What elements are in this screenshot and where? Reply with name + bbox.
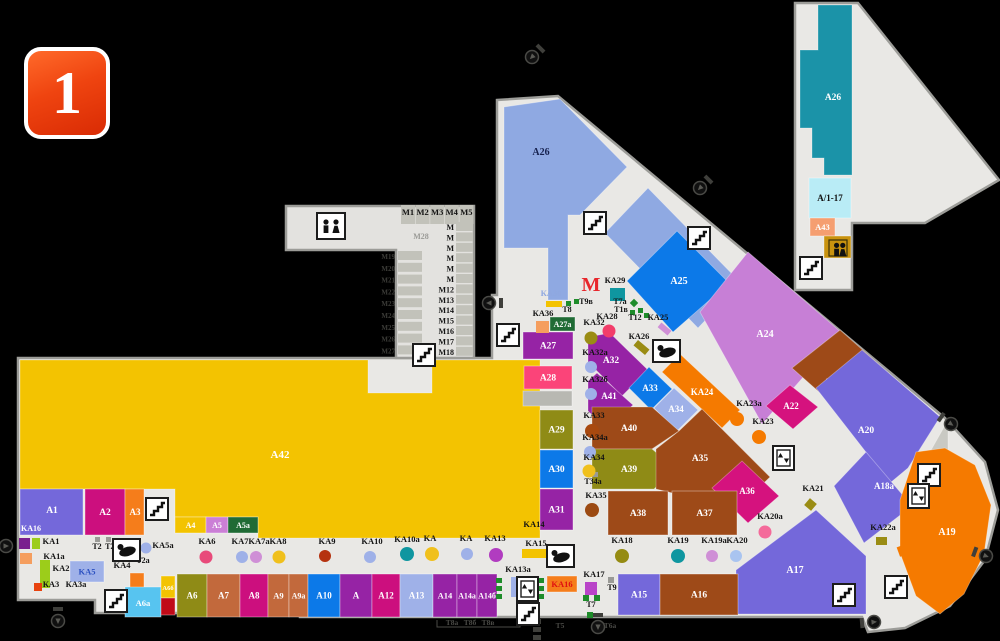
kiosk-label: KA bbox=[460, 533, 474, 543]
stairs-icon bbox=[800, 257, 822, 279]
m-unit[interactable] bbox=[398, 286, 422, 295]
store-label: A36 bbox=[739, 486, 755, 496]
floor-1-badge[interactable]: 1 bbox=[24, 47, 110, 139]
entrance-icon bbox=[52, 607, 65, 628]
map-label: М3 bbox=[431, 207, 443, 217]
map-label: М5 bbox=[460, 207, 472, 217]
store-label: A26 bbox=[825, 93, 842, 103]
store-label: A7 bbox=[218, 591, 229, 601]
store-label: A33 bbox=[642, 383, 658, 393]
store-label: KA5 bbox=[79, 567, 96, 577]
kiosk-mark-ka1a-mark[interactable] bbox=[20, 553, 32, 564]
floor-plan-canvas: М1М2М3М4М5МММММММ12М13М14М15М16М17М18М19… bbox=[0, 0, 1000, 641]
store-A[interactable]: A bbox=[340, 574, 372, 617]
m-unit[interactable] bbox=[398, 275, 422, 284]
map-label: М bbox=[446, 233, 454, 242]
store-A9a[interactable]: A9a bbox=[289, 574, 308, 617]
map-label: М24 bbox=[381, 312, 395, 320]
store-A31[interactable]: A31 bbox=[540, 489, 573, 530]
store-A27a[interactable]: A27a bbox=[550, 317, 575, 331]
kiosk-mark-ka16-left-mark[interactable] bbox=[19, 538, 30, 549]
kiosk-label: KA34 bbox=[583, 452, 605, 462]
kiosk-mark-green-dash[interactable] bbox=[496, 594, 502, 599]
kiosk-mark-ka15-mark[interactable] bbox=[522, 549, 549, 558]
map-label: Т34а bbox=[584, 477, 601, 486]
map-label: М bbox=[446, 254, 454, 263]
map-label: М20 bbox=[381, 265, 395, 273]
map-label: М26 bbox=[381, 336, 395, 344]
store-label: A31 bbox=[548, 506, 565, 516]
store-A6a[interactable]: A6a bbox=[125, 587, 161, 617]
map-label: KA15 bbox=[525, 538, 546, 548]
stairs-icon bbox=[584, 212, 606, 234]
store-dark-red-unit[interactable] bbox=[161, 598, 175, 615]
store-label: A28 bbox=[540, 374, 557, 384]
sofa-icon bbox=[113, 539, 140, 561]
store-label: A27 bbox=[540, 342, 557, 352]
map-label: КА29 bbox=[605, 275, 626, 285]
store-A29[interactable]: A29 bbox=[540, 410, 573, 449]
m-unit[interactable] bbox=[456, 305, 473, 314]
map-label: М18 bbox=[438, 348, 454, 357]
m-unit[interactable] bbox=[456, 284, 473, 293]
store-A30[interactable]: A30 bbox=[540, 450, 573, 488]
map-label: КА36 bbox=[533, 308, 554, 318]
map-label: Т1в bbox=[614, 305, 628, 314]
store-A6[interactable]: A6 bbox=[177, 574, 207, 617]
m-unit[interactable] bbox=[456, 253, 473, 262]
kiosk-mark-dark-tick[interactable] bbox=[533, 627, 541, 632]
map-label: Т2 bbox=[92, 542, 101, 551]
wc-icon bbox=[317, 213, 345, 239]
elevator-icon bbox=[517, 577, 538, 601]
store-A5a[interactable]: A5a bbox=[228, 517, 258, 533]
kiosk-label: KA19 bbox=[667, 535, 688, 545]
map-label: KA2 bbox=[53, 563, 70, 573]
map-label: Т12 bbox=[628, 313, 641, 322]
store-label: A35 bbox=[692, 454, 709, 464]
m-unit[interactable] bbox=[456, 243, 473, 252]
kiosk-label: KA32a bbox=[582, 347, 608, 357]
store-label: A17 bbox=[786, 565, 803, 576]
store-A10[interactable]: A10 bbox=[308, 574, 340, 617]
store-label: A12 bbox=[378, 591, 394, 601]
m-unit[interactable] bbox=[398, 263, 422, 272]
map-label: М15 bbox=[438, 317, 454, 326]
kiosk-label: KA10 bbox=[361, 536, 382, 546]
map-label: Т8 bbox=[562, 305, 571, 314]
store-A5[interactable]: A5 bbox=[206, 517, 228, 533]
map-label: М17 bbox=[438, 337, 454, 346]
kiosk-label: KA33 bbox=[583, 410, 604, 420]
map-label: М22 bbox=[381, 288, 395, 296]
store-label: A37 bbox=[696, 509, 713, 519]
map-label: М19 bbox=[381, 253, 395, 261]
map-label: М1 bbox=[402, 207, 414, 217]
map-label: М bbox=[446, 275, 454, 284]
m-unit[interactable] bbox=[398, 322, 422, 331]
kiosk-label: KA32б bbox=[582, 374, 608, 384]
store-label: A30 bbox=[548, 465, 565, 475]
floor-number: 1 bbox=[52, 59, 82, 128]
map-label: Т6а bbox=[604, 621, 617, 630]
store-A8[interactable]: A8 bbox=[240, 574, 268, 617]
store-label: A39 bbox=[621, 465, 638, 475]
map-label: Т5 bbox=[556, 621, 565, 630]
stairs-icon bbox=[688, 227, 710, 249]
store-label: A22 bbox=[783, 401, 799, 411]
store-label: A5a bbox=[236, 521, 250, 530]
map-label: М4 bbox=[446, 207, 459, 217]
kiosk-mark-ka3-mark[interactable] bbox=[34, 583, 42, 591]
store-A19[interactable]: A19 bbox=[900, 448, 991, 614]
store-A37[interactable]: A37 bbox=[672, 491, 737, 535]
entrance-icon bbox=[691, 174, 715, 198]
stairs-icon bbox=[146, 498, 168, 520]
store-A14б[interactable]: A14б bbox=[477, 574, 497, 617]
kiosk-mark-dark-tick[interactable] bbox=[533, 635, 541, 640]
sofa-icon bbox=[547, 545, 574, 567]
map-label: М2 bbox=[416, 207, 428, 217]
map-label: KA17 bbox=[583, 569, 605, 579]
map-label: KA21 bbox=[802, 483, 823, 493]
kiosk-label: KA5a bbox=[152, 540, 174, 550]
m-unit[interactable] bbox=[456, 274, 473, 283]
kiosk-mark-green-dash[interactable] bbox=[496, 586, 502, 591]
store-A2[interactable]: A2 bbox=[85, 489, 125, 535]
m-unit[interactable] bbox=[456, 295, 473, 304]
map-label: М21 bbox=[381, 277, 395, 285]
map-label: КА30 bbox=[541, 288, 562, 298]
kiosk-label: KA23a bbox=[736, 398, 762, 408]
kiosk-mark-ka36-mark[interactable] bbox=[536, 321, 549, 333]
store-A9[interactable]: A9 bbox=[268, 574, 289, 617]
stairs-icon bbox=[918, 464, 940, 486]
map-label: М14 bbox=[438, 306, 454, 315]
map-label: Т8в bbox=[482, 618, 495, 627]
store-label: A19 bbox=[938, 527, 955, 538]
store-label: A42 bbox=[271, 449, 290, 461]
store-label: A14a bbox=[458, 592, 476, 601]
map-label: KA1 bbox=[43, 536, 60, 546]
stairs-icon bbox=[833, 584, 855, 606]
store-label: A1 bbox=[46, 506, 58, 516]
store-label: A26 bbox=[532, 147, 549, 158]
kiosk-label: KA20 bbox=[726, 535, 747, 545]
kiosk-label: KA8 bbox=[270, 536, 287, 546]
store-label: A40 bbox=[621, 424, 638, 434]
store-A4[interactable]: A4 bbox=[175, 517, 206, 533]
m-unit[interactable] bbox=[398, 310, 422, 319]
store-label: A25 bbox=[670, 276, 687, 287]
kiosk-label: KA35 bbox=[585, 490, 606, 500]
map-label: М13 bbox=[438, 296, 454, 305]
store-label: A16 bbox=[691, 591, 708, 601]
store-label: A14б bbox=[478, 592, 496, 601]
elevator-icon bbox=[773, 446, 794, 470]
store-A28[interactable]: A28 bbox=[524, 366, 572, 389]
map-label: Т7 bbox=[586, 600, 595, 609]
m-unit[interactable] bbox=[456, 316, 473, 325]
store-label: A9a bbox=[292, 592, 306, 601]
store-A13[interactable]: A13 bbox=[400, 574, 433, 617]
store-label: A20 bbox=[858, 426, 875, 436]
kiosk-mark-ka30-mark[interactable] bbox=[546, 301, 562, 307]
store-label: A13 bbox=[409, 591, 425, 601]
map-label: Т9 bbox=[607, 583, 616, 592]
store-label: A34 bbox=[668, 404, 684, 414]
store-A15[interactable]: A15 bbox=[618, 574, 660, 615]
store-A12[interactable]: A12 bbox=[372, 574, 400, 617]
kiosk-mark-ka22a-mark[interactable] bbox=[876, 537, 887, 545]
m-unit[interactable] bbox=[456, 326, 473, 335]
store-label: A6a bbox=[136, 598, 151, 608]
store-label: А6б bbox=[162, 585, 174, 592]
store-A43[interactable]: A43 bbox=[810, 218, 835, 236]
store-label: A29 bbox=[548, 426, 565, 436]
store-label: A24 bbox=[756, 329, 773, 340]
store-А6б[interactable]: А6б bbox=[161, 576, 175, 598]
store-label: A15 bbox=[631, 591, 648, 601]
store-А/1-17[interactable]: А/1-17 bbox=[809, 178, 851, 218]
store-label: A5 bbox=[212, 521, 222, 530]
m-unit[interactable] bbox=[398, 334, 422, 343]
kiosk-label: KA20a bbox=[757, 511, 783, 521]
store-label: A9 bbox=[273, 591, 283, 601]
map-label: М12 bbox=[438, 285, 454, 294]
entrance-icon bbox=[483, 297, 504, 310]
map-label: КА3а bbox=[66, 579, 88, 589]
map-label: KA14 bbox=[523, 519, 545, 529]
store-A16[interactable]: A16 bbox=[660, 574, 738, 615]
map-label: Т9в bbox=[579, 297, 593, 306]
store-label: A bbox=[353, 591, 360, 601]
mall-floor-plan: М1М2М3М4М5МММММММ12М13М14М15М16М17М18М19… bbox=[0, 0, 1000, 641]
map-label: KA22a bbox=[870, 522, 896, 532]
kiosk-label: KA13 bbox=[484, 533, 505, 543]
store-label: A8 bbox=[249, 591, 260, 601]
store-label: A18a bbox=[874, 481, 894, 491]
m-unit[interactable] bbox=[456, 264, 473, 273]
stairs-icon bbox=[497, 324, 519, 346]
store-A27[interactable]: A27 bbox=[523, 332, 573, 359]
kiosk-mark-green-dash[interactable] bbox=[496, 578, 502, 583]
kiosk-label: KA7 bbox=[232, 536, 250, 546]
m-unit[interactable] bbox=[456, 336, 473, 345]
map-label: KA1a bbox=[43, 551, 65, 561]
store-label: A10 bbox=[316, 591, 332, 601]
map-label: KA13a bbox=[505, 564, 531, 574]
store-label: A3 bbox=[130, 507, 141, 517]
kiosk-label: KA32 bbox=[583, 317, 604, 327]
kiosk-label: KA bbox=[424, 533, 438, 543]
store-label: A14 bbox=[438, 591, 453, 601]
sofa-icon bbox=[653, 340, 680, 362]
m-unit[interactable] bbox=[398, 251, 422, 260]
kiosk-mark-ka1-mark[interactable] bbox=[32, 538, 40, 549]
store-label: A2 bbox=[99, 508, 111, 518]
store-A38[interactable]: A38 bbox=[608, 491, 668, 535]
store-A7[interactable]: A7 bbox=[207, 574, 240, 617]
store-label: KA24 bbox=[691, 387, 714, 397]
map-label: М25 bbox=[381, 324, 395, 332]
store-KA16[interactable]: KA16 bbox=[547, 576, 577, 592]
stairs-icon bbox=[413, 344, 435, 366]
store-gray-unit[interactable] bbox=[523, 391, 572, 406]
kiosk-label: KA23 bbox=[752, 416, 773, 426]
map-label: М16 bbox=[438, 327, 454, 336]
store-A14a[interactable]: A14a bbox=[457, 574, 477, 617]
map-label: М bbox=[446, 223, 454, 232]
kiosk-label: KA9 bbox=[319, 536, 336, 546]
kiosk-label: KA34a bbox=[582, 432, 608, 442]
map-label: КА25 bbox=[648, 312, 669, 322]
map-label: М27 bbox=[381, 347, 395, 355]
store-label: A41 bbox=[601, 391, 617, 401]
store-label: A27a bbox=[554, 320, 572, 329]
map-label: Т8б bbox=[464, 618, 477, 627]
map-label: М28 bbox=[413, 232, 429, 241]
entrance-icon bbox=[592, 613, 605, 634]
store-label: A4 bbox=[186, 521, 196, 530]
kiosk-label: KA10a bbox=[394, 534, 420, 544]
kiosk-label: KA18 bbox=[611, 535, 632, 545]
map-label: KA16 bbox=[21, 524, 41, 533]
entrance-icon bbox=[0, 540, 13, 553]
store-label: А/1-17 bbox=[817, 193, 843, 203]
entrance-icon bbox=[523, 43, 547, 67]
store-A3[interactable]: A3 bbox=[125, 489, 144, 535]
map-label: КА26 bbox=[629, 331, 650, 341]
store-label: A6 bbox=[187, 591, 198, 601]
stairs-icon bbox=[517, 603, 539, 625]
store-label: A38 bbox=[630, 509, 647, 519]
kiosk-mark-ka17-mark[interactable] bbox=[585, 582, 597, 595]
metro-icon: М bbox=[582, 274, 601, 296]
kiosk-label: KA19a bbox=[701, 535, 727, 545]
store-label: A43 bbox=[815, 222, 830, 232]
store-A14[interactable]: A14 bbox=[433, 574, 457, 617]
store-label: KA16 bbox=[551, 579, 572, 589]
map-label: КА3 bbox=[43, 579, 60, 589]
map-label: М bbox=[446, 265, 454, 274]
map-label: Т8а bbox=[446, 618, 459, 627]
m-unit[interactable] bbox=[456, 232, 473, 241]
stairs-icon bbox=[885, 576, 907, 598]
m-unit[interactable] bbox=[456, 222, 473, 231]
store-label: A32 bbox=[603, 356, 620, 366]
map-label: М23 bbox=[381, 300, 395, 308]
m-unit[interactable] bbox=[456, 347, 473, 356]
kiosk-mark-t7-mark3[interactable] bbox=[587, 612, 593, 618]
kiosk-label: KA7a bbox=[248, 536, 270, 546]
elevator-icon bbox=[908, 484, 929, 508]
m-unit[interactable] bbox=[398, 298, 422, 307]
stairs-icon bbox=[105, 590, 127, 612]
map-label: М bbox=[446, 244, 454, 253]
kiosk-label: KA6 bbox=[199, 536, 216, 546]
